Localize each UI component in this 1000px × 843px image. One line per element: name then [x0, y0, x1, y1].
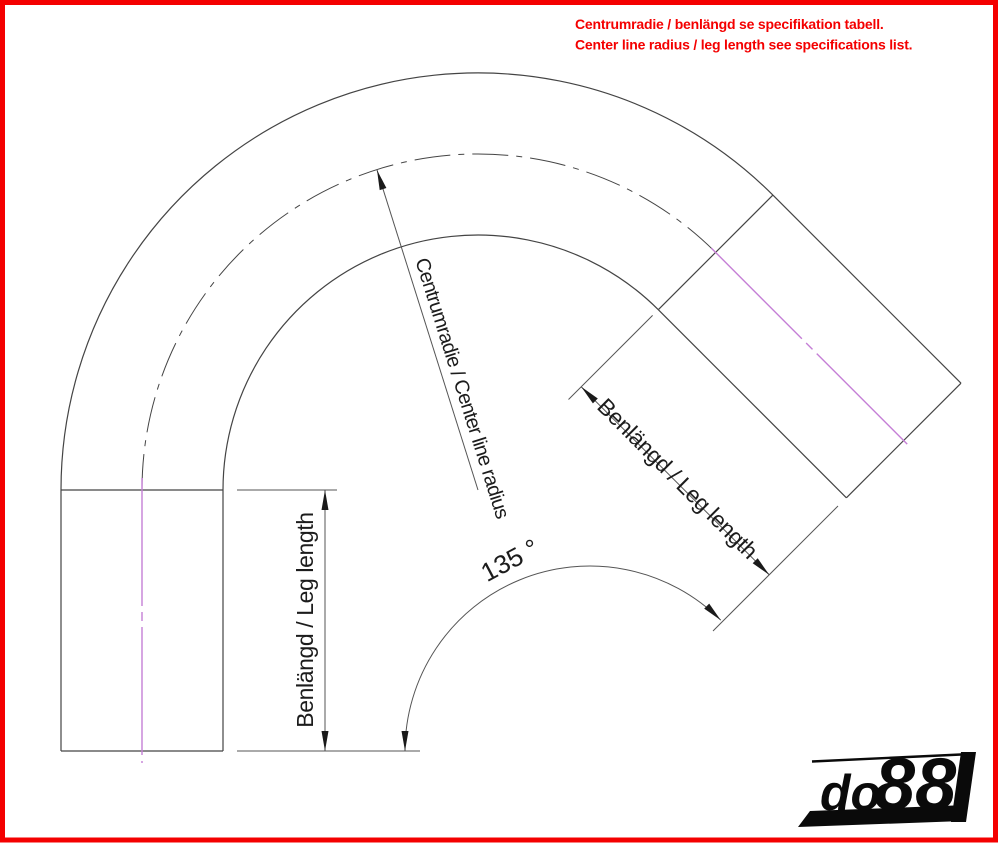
right-leg-dim-label: Benlängd / Leg length — [592, 393, 763, 564]
angle-arrowhead-left — [402, 731, 409, 751]
radius-dim-line — [377, 170, 478, 490]
angle-dim-label: 135 ° — [476, 532, 544, 587]
right-leg-centerline — [711, 248, 911, 448]
left-leg-dim-label: Benlängd / Leg length — [292, 512, 318, 727]
bend-inner-arc — [223, 235, 658, 490]
dimension-annotations: Benlängd / Leg length Benlängd / Leg len… — [237, 170, 838, 751]
logo-text-88: 88 — [874, 743, 957, 826]
logo-text-do: do — [820, 765, 881, 821]
technical-drawing: Centrumradie / benlängd se specifikation… — [0, 0, 1000, 843]
hose-body — [61, 73, 961, 763]
right-dim-arrowhead-upper — [581, 387, 598, 404]
left-dim-arrowhead-down — [322, 731, 329, 751]
angle-arrowhead-right — [704, 604, 721, 621]
page-border — [3, 3, 996, 841]
radius-dim-label: Centrumradie / Center line radius — [410, 255, 513, 521]
right-leg-outer-wall — [773, 195, 961, 383]
angle-dim-arc — [405, 566, 721, 751]
drawing-page: Centrumradie / benlängd se specifikation… — [0, 0, 1000, 843]
do88-logo: do 88 — [798, 743, 976, 827]
note-line-english: Center line radius / leg length see spec… — [575, 37, 912, 53]
note-line-swedish: Centrumradie / benlängd se specifikation… — [575, 16, 884, 32]
radius-dim-arrowhead — [377, 170, 386, 190]
left-dim-arrowhead-up — [322, 490, 329, 510]
